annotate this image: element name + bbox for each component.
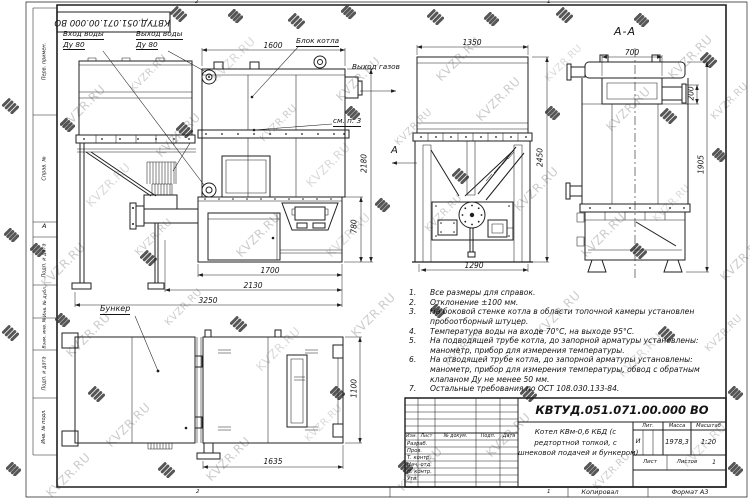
note-text: На подводящей трубе котла, до запорной а… (430, 336, 704, 355)
tb-name-line1: Котел КВм-0,6 КБД (с (518, 427, 633, 438)
callout-water-out: Выход воды Ду 80 (136, 29, 183, 50)
tb-col-izm: Изм. (405, 434, 418, 439)
dim-780: 780 (350, 207, 359, 247)
callout-water-out-line1: Выход воды (136, 29, 183, 40)
note-number: 4. (406, 327, 430, 337)
technical-notes: 1.Все размеры для справок. 2.Отклонение … (406, 288, 704, 394)
dim-2130: 2130 (233, 281, 273, 290)
dim-1290: 1290 (454, 261, 494, 270)
tb-col-list: Лист (418, 434, 435, 439)
zone-number-top-2: 2 (195, 0, 199, 5)
tb-col-data: Дата (500, 434, 518, 439)
tb-sheets-value: 1 (707, 459, 721, 466)
dim-700: 700 (612, 48, 652, 57)
tb-designation: КВТУД.051.071.00.000 ВО (518, 398, 726, 422)
dim-1635: 1635 (253, 457, 293, 466)
tb-row-nachotd: Нач. отд. (407, 462, 432, 468)
note-number: 7. (406, 384, 430, 394)
note-item: 5.На подводящей трубе котла, до запорной… (406, 336, 704, 355)
tb-row-tkontr: Т. контр. (407, 455, 431, 461)
callout-water-out-line2: Ду 80 (136, 40, 158, 51)
dim-1600: 1600 (253, 41, 293, 50)
tb-mass-label: Масса (663, 423, 691, 429)
zone-number-top-1: 1 (547, 0, 551, 5)
dim-200: 200 (687, 74, 696, 114)
tb-lit-value: И (633, 437, 643, 445)
tb-sheets-label: Листов (667, 459, 707, 465)
side-label-vzam-inv: Взам. инв. № (41, 319, 50, 349)
note-text: На отводящей трубе котла, до запорной ар… (430, 355, 704, 384)
note-item: 1.Все размеры для справок. (406, 288, 704, 298)
callout-boiler-block-label: Блок котла (296, 36, 339, 47)
zone-letter-a: А (42, 222, 46, 230)
tb-row-nkontr: Н. контр. (407, 469, 432, 475)
copied-label: Копировал (570, 488, 630, 496)
tb-col-dokum: № докум. (435, 434, 476, 439)
middle-view (412, 57, 533, 262)
section-view (566, 48, 690, 278)
tb-mass-value: 1978,3 (663, 438, 691, 446)
zone-number-bottom-2: 2 (196, 489, 200, 495)
front-view (72, 56, 362, 289)
tb-scale-label: Масштаб (691, 423, 726, 429)
note-item: 6.На отводящей трубе котла, до запорной … (406, 355, 704, 384)
note-item: 7.Остальные требования по ОСТ 108.030.13… (406, 384, 704, 394)
note-item: 3.На боковой стенке котла в области топо… (406, 307, 704, 326)
dim-2180: 2180 (360, 144, 369, 184)
callout-water-in-line2: Ду 80 (63, 40, 85, 51)
tb-sheet-label: Лист (633, 459, 667, 465)
tb-product-name: Котел КВм-0,6 КБД (с редтортной топкой, … (518, 427, 633, 459)
zone-number-bottom-1: 1 (547, 489, 551, 495)
callout-see-note-label: см. п. 3 (333, 116, 361, 127)
callout-water-in-line1: Вход воды (63, 29, 104, 40)
note-item: 4.Температура воды на входе 70°С, на вых… (406, 327, 704, 337)
tb-row-prov: Пров. (407, 448, 422, 454)
tb-row-utv: Утв. (407, 476, 418, 482)
note-number: 2. (406, 298, 430, 308)
side-label-perv-primen: Перв. примен. (41, 12, 50, 112)
dim-2450: 2450 (536, 138, 545, 178)
dim-1350: 1350 (452, 38, 492, 47)
callout-gas-out: Выход газов (352, 62, 400, 72)
callout-bunker: Бункер (100, 304, 130, 315)
note-text: Все размеры для справок. (430, 288, 704, 298)
callout-see-note: см. п. 3 (333, 116, 361, 127)
format-label: Формат А3 (655, 488, 725, 496)
note-text: Температура воды на входе 70°С, на выход… (430, 327, 704, 337)
dim-1700: 1700 (250, 266, 290, 275)
side-label-sprav-no: Справ. № (41, 119, 50, 219)
side-label-podp-data-1: Подп. и дата (41, 238, 50, 284)
tb-scale-value: 1:20 (691, 438, 726, 446)
note-item: 2.Отклонение ±100 мм. (406, 298, 704, 308)
dim-1100: 1100 (350, 369, 359, 409)
tb-name-line2: редтортной топкой, с (518, 438, 633, 449)
drawing-sheet: KVZR.RUKVZR.RUKVZR.RUKVZR.RUKVZR.RUKVZR.… (0, 0, 750, 500)
note-text: Отклонение ±100 мм. (430, 298, 704, 308)
side-label-inv-podl: Инв. № подл. (40, 399, 49, 454)
section-view-title: А-А (614, 25, 636, 38)
side-label-inv-dubl: Инв. № дубл. (41, 286, 50, 317)
view-arrow-letter: А (391, 145, 398, 156)
callout-bunker-label: Бункер (100, 304, 130, 315)
note-text: На боковой стенке котла в области топочн… (430, 307, 704, 326)
note-text: Остальные требования по ОСТ 108.030.133-… (430, 384, 704, 394)
callout-water-in: Вход воды Ду 80 (63, 29, 104, 50)
dim-1905: 1905 (697, 145, 706, 185)
callout-gas-out-label: Выход газов (352, 62, 400, 71)
side-label-podp-data-2: Подп. и дата (41, 351, 50, 397)
tb-row-razrab: Разраб. (407, 441, 427, 447)
dim-3250: 3250 (188, 296, 228, 305)
note-number: 3. (406, 307, 430, 326)
tb-name-line3: шнековой подачей и бункером) (518, 448, 633, 459)
note-number: 6. (406, 355, 430, 384)
callout-boiler-block: Блок котла (296, 36, 339, 47)
note-number: 1. (406, 288, 430, 298)
tb-lit-label: Лит. (633, 423, 663, 429)
note-number: 5. (406, 336, 430, 355)
tb-col-podp: Подп. (476, 434, 500, 439)
